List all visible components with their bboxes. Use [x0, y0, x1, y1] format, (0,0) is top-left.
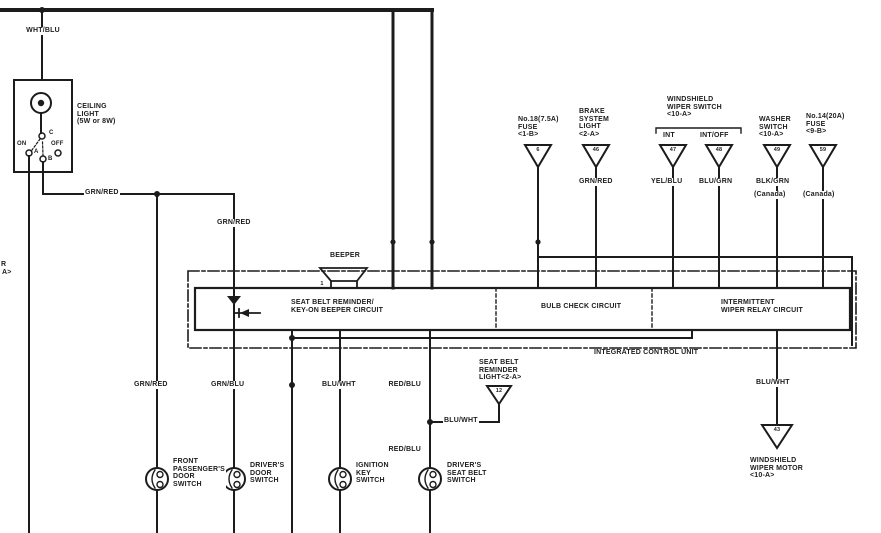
- wire-label-blu-wht-motor: BLU/WHT: [755, 379, 791, 387]
- ceiling-light-label: CEILING LIGHT (5W or 8W): [76, 103, 117, 126]
- front-passenger-door-switch-symbol: [146, 468, 168, 490]
- beeper-pin-label: 1: [318, 281, 326, 287]
- wiper-int-pin: 47: [663, 147, 683, 153]
- wire-label-blu-wht-branch: BLU/WHT: [443, 417, 479, 425]
- ceiling-light-off-label: OFF: [50, 141, 65, 148]
- seat-belt-reminder-light-pin: 12: [488, 388, 510, 394]
- wire-label-blu-grn: BLU/GRN: [698, 178, 733, 186]
- wiper-motor-pin: 43: [766, 427, 788, 433]
- power-bus-wire: [0, 7, 541, 288]
- wiring-lines: [0, 0, 881, 533]
- ceiling-light-a-label: A: [33, 149, 40, 156]
- brake-system-light-pin: 46: [586, 147, 606, 153]
- fuse-18-label: No.18(7.5A) FUSE <1-B>: [517, 116, 560, 139]
- fuse-18-pin: 6: [528, 147, 548, 153]
- icu-section-bulb-check: BULB CHECK CIRCUIT: [540, 303, 622, 311]
- washer-switch-label: WASHER SWITCH <10-A>: [758, 116, 792, 139]
- wire-label-blk-grn: BLK/GRN: [755, 178, 790, 186]
- wire-label-grn-red-ceiling: GRN/RED: [84, 189, 120, 197]
- ceiling-light-symbol: [14, 10, 72, 194]
- seat-belt-reminder-light-label: SEAT BELT REMINDER LIGHT<2-A>: [478, 359, 522, 382]
- wire-label-grn-blu-bottom: GRN/BLU: [210, 381, 245, 389]
- wiper-int-off-pin: 48: [709, 147, 729, 153]
- ceiling-light-b-label: B: [47, 156, 54, 163]
- wire-label-blu-wht-bottom: BLU/WHT: [321, 381, 357, 389]
- ignition-key-switch-symbol: [329, 468, 351, 490]
- driver-door-switch-label: DRIVER'S DOOR SWITCH: [249, 462, 285, 485]
- icu-section-seat-belt-reminder: SEAT BELT REMINDER/ KEY-ON BEEPER CIRCUI…: [290, 299, 384, 314]
- washer-switch-pin: 49: [767, 147, 787, 153]
- wiper-int-label: INT: [662, 132, 676, 140]
- ceiling-light-on-label: ON: [16, 141, 27, 148]
- front-passenger-door-switch-label: FRONT PASSENGER'S DOOR SWITCH: [172, 458, 226, 488]
- wire-label-grn-red-bottom: GRN/RED: [133, 381, 169, 389]
- wire-label-red-blu-lower: RED/BLU: [376, 446, 422, 454]
- edge-fragment-1: R: [0, 261, 7, 269]
- wire-label-red-blu-upper: RED/BLU: [376, 381, 422, 389]
- edge-fragment-2: A>: [1, 269, 13, 277]
- driver-seat-belt-switch-symbol: [419, 468, 441, 490]
- wire-label-grn-red-brake: GRN/RED: [578, 178, 614, 186]
- brake-system-light-label: BRAKE SYSTEM LIGHT <2-A>: [578, 108, 610, 138]
- bottom-wires: [340, 330, 792, 533]
- wiper-int-off-label: INT/OFF: [699, 132, 730, 140]
- wire-label-grn-red-drop: GRN/RED: [216, 219, 252, 227]
- wiper-motor-label: WINDSHIELD WIPER MOTOR <10-A>: [749, 457, 804, 480]
- driver-door-switch-symbol: [223, 468, 245, 490]
- wiring-diagram-page: WHT/BLU CEILING LIGHT (5W or 8W) ON OFF …: [0, 0, 881, 533]
- wire-label-yel-blu: YEL/BLU: [650, 178, 683, 186]
- driver-seat-belt-switch-label: DRIVER'S SEAT BELT SWITCH: [446, 462, 488, 485]
- washer-canada-note: (Canada): [753, 191, 787, 199]
- ignition-key-switch-label: IGNITION KEY SWITCH: [355, 462, 390, 485]
- beeper-label: BEEPER: [329, 252, 361, 260]
- icu-section-intermittent-wiper: INTERMITTENT WIPER RELAY CIRCUIT: [720, 299, 804, 314]
- diode-symbols: [227, 296, 260, 533]
- fuse-14-canada-note: (Canada): [802, 191, 836, 199]
- ceiling-light-c-label: C: [48, 130, 55, 137]
- windshield-wiper-switch-label: WINDSHIELD WIPER SWITCH <10-A>: [666, 96, 723, 119]
- fuse-14-pin: 59: [813, 147, 833, 153]
- wire-label-wht-blu: WHT/BLU: [20, 27, 66, 35]
- fuse-14-label: No.14(20A) FUSE <9-B>: [805, 113, 846, 136]
- icu-title: INTEGRATED CONTROL UNIT: [593, 349, 699, 357]
